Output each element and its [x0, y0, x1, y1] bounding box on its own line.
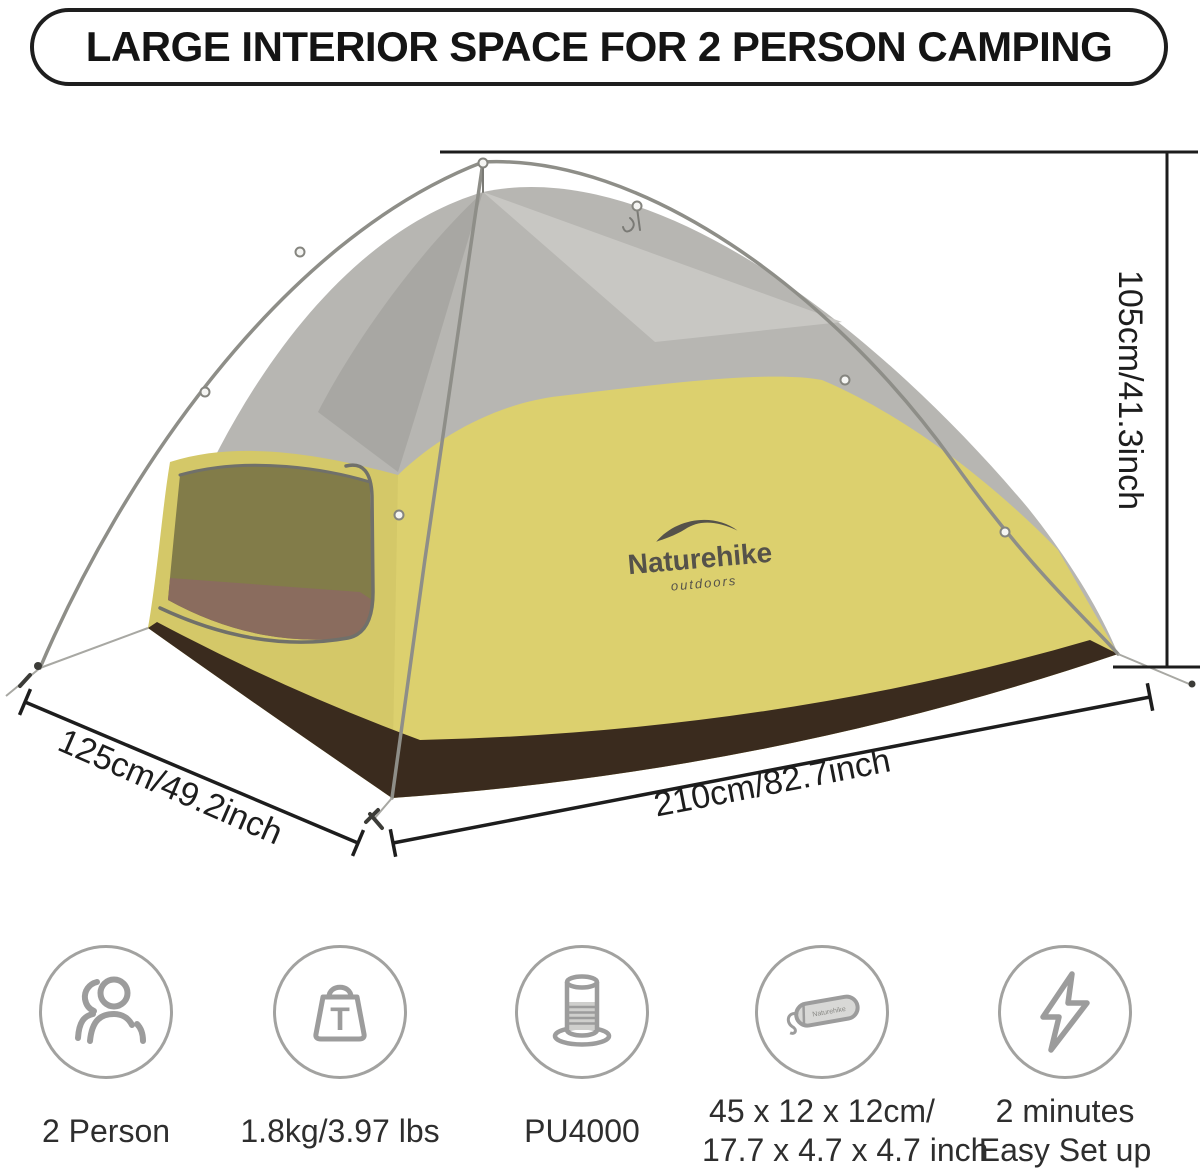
feature-packed-size-label: 45 x 12 x 12cm/ 17.7 x 4.7 x 4.7 inch — [702, 1091, 942, 1171]
dimension-width-label: 125cm/49.2inch — [53, 722, 288, 853]
feature-packed-size: Naturehike 45 x 12 x 12cm/ 17.7 x 4.7 x … — [702, 945, 942, 1171]
feature-setup-time-label: 2 minutes Easy Set up — [945, 1091, 1185, 1171]
weight-glyph: T — [330, 1001, 350, 1037]
stake-left — [20, 675, 30, 686]
feature-weight: T 1.8kg/3.97 lbs — [220, 945, 460, 1171]
stake-head-left — [34, 662, 42, 670]
feature-waterproof-label: PU4000 — [462, 1091, 702, 1171]
stake-head-right — [1189, 681, 1196, 688]
page-title: LARGE INTERIOR SPACE FOR 2 PERSON CAMPIN… — [86, 23, 1113, 71]
water-column-icon — [515, 945, 649, 1079]
title-banner: LARGE INTERIOR SPACE FOR 2 PERSON CAMPIN… — [30, 8, 1168, 86]
people-icon — [39, 945, 173, 1079]
feature-setup-time: 2 minutes Easy Set up — [945, 945, 1185, 1171]
feature-waterproof: PU4000 — [462, 945, 702, 1171]
feature-capacity-label: 2 Person — [0, 1091, 226, 1171]
product-infographic: LARGE INTERIOR SPACE FOR 2 PERSON CAMPIN… — [0, 0, 1200, 1173]
tent-illustration: Naturehike outdoors 105cm/41.3inch 125cm… — [0, 130, 1200, 875]
feature-weight-label: 1.8kg/3.97 lbs — [220, 1091, 460, 1171]
storage-bag-icon: Naturehike — [755, 945, 889, 1079]
feature-capacity: 2 Person — [0, 945, 226, 1171]
dimension-height-label: 105cm/41.3inch — [1111, 270, 1149, 510]
weight-icon: T — [273, 945, 407, 1079]
bag-logo-text: Naturehike — [812, 1006, 847, 1019]
lightning-icon — [998, 945, 1132, 1079]
